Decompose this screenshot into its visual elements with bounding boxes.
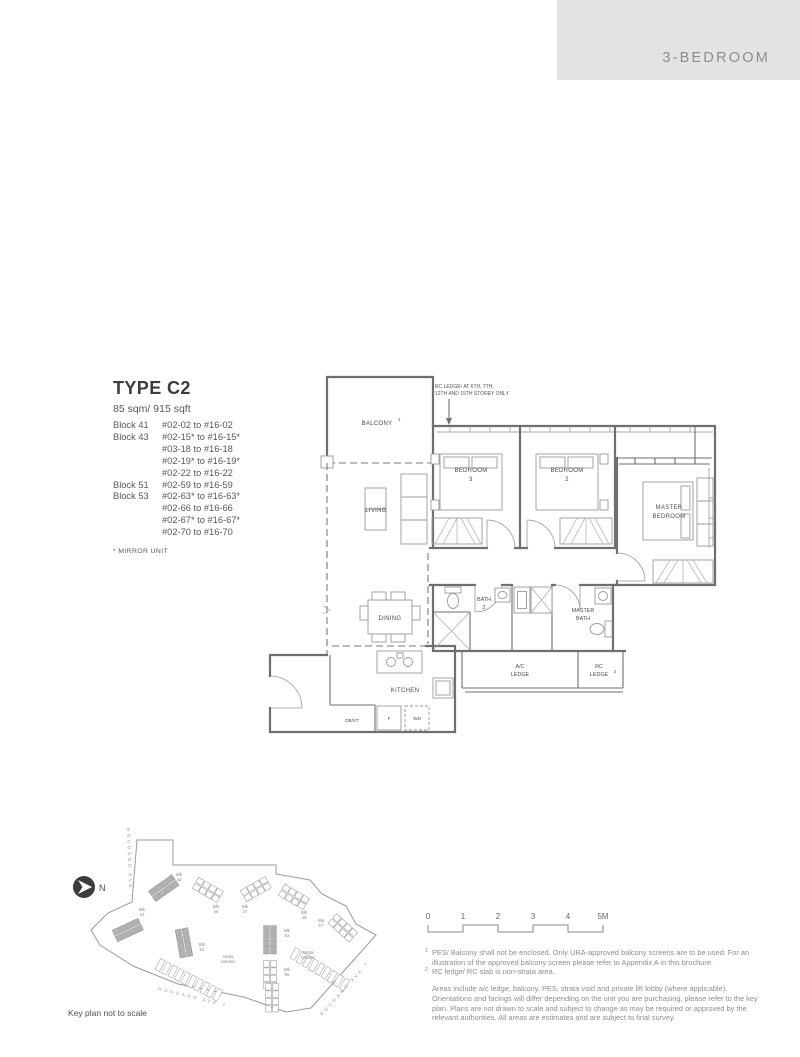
building-block (175, 929, 182, 936)
entrance-door (270, 676, 302, 708)
keyplan-cluster (278, 884, 309, 909)
footnote: 1PES/ Balcony shall not be enclosed. Onl… (424, 948, 764, 967)
bath2-label-2: 2 (483, 605, 486, 611)
block-number-label: Blk53 (284, 928, 291, 938)
building-block (273, 1006, 279, 1013)
category-label: 3-BEDROOM (662, 50, 770, 66)
bed2-side-table (600, 500, 608, 510)
master-window-wall (617, 458, 712, 464)
outer-wall-entry (270, 655, 455, 732)
block-label: Block 43 (113, 432, 162, 444)
block-number-label: Blk49 (301, 910, 308, 920)
building-block (271, 948, 277, 955)
rc-ledge-sup: 2 (614, 669, 617, 674)
master-bath-label-2: BATH (576, 616, 590, 622)
building-block (273, 991, 279, 998)
building-block (266, 984, 272, 991)
block-label: Block 51 (113, 480, 162, 492)
master-bath-wc (590, 624, 604, 635)
block-number-label: Blk43 (176, 872, 183, 882)
building-block (271, 940, 277, 947)
dining-label: DINING (379, 616, 402, 622)
bed3-side-table (431, 500, 439, 510)
master-bath-door (555, 585, 580, 610)
building-block (271, 933, 277, 940)
strata-landed-label: stratalanded (301, 950, 315, 960)
building-block (186, 949, 193, 956)
dining-chair (372, 592, 386, 600)
rc-ledge-note-line2: 12TH AND 15TH STOREY ONLY (435, 391, 510, 397)
master-door (617, 553, 645, 581)
bedroom2-label-2: 2 (565, 477, 569, 483)
scale-tick-label: 3 (531, 912, 536, 921)
keyplan-caption: Key plan not to scale (68, 1008, 147, 1018)
bed2-door (527, 520, 555, 548)
bed3-pillow (444, 457, 469, 468)
footnote: 2RC ledge/ RC slab is non-strata area. (424, 967, 764, 977)
building-block (271, 926, 277, 933)
master-bedroom-label-1: MASTER (656, 505, 683, 511)
block-label (113, 527, 162, 539)
building-block (264, 975, 270, 982)
block-label (113, 503, 162, 515)
block-number-label: Blk57 (318, 918, 325, 928)
building-block (264, 940, 270, 947)
building-block (264, 968, 270, 975)
bed3-door (487, 520, 515, 548)
footnote-marker: 2 (425, 966, 428, 976)
balcony-walls (327, 377, 433, 463)
keyplan-cluster (192, 877, 223, 902)
keyplan-cluster (328, 914, 358, 943)
building-block (176, 936, 183, 943)
block-label: Block 41 (113, 420, 162, 432)
bed2-pillow (568, 457, 593, 468)
master-wardrobe-hatch (656, 560, 707, 583)
building-block (273, 984, 279, 991)
master-bath-label-1: MASTER (572, 608, 595, 614)
block-label (113, 444, 162, 456)
rc-ledge-label-2: LEDGE (590, 672, 609, 678)
keyplan-cluster (112, 918, 143, 942)
north-label: N (99, 883, 106, 893)
kitchen-label: KITCHEN (391, 688, 419, 694)
master-wardrobe-shelves (697, 501, 713, 524)
bed2-wardrobe-hatch (563, 518, 609, 544)
scale-bar-rule (428, 925, 603, 932)
building-block (264, 926, 270, 933)
footnote-text: Areas include a/c ledge, balcony, PES, s… (432, 984, 758, 1022)
building-block (179, 950, 186, 957)
sofa (401, 474, 427, 544)
footnote-text: PES/ Balcony shall not be enclosed. Only… (432, 948, 749, 967)
scale-bar: 012345M (424, 910, 614, 942)
dining-chair (412, 606, 420, 620)
building-block (271, 975, 277, 982)
bed2-pillow (540, 457, 565, 468)
category-band: 3-BEDROOM (557, 0, 800, 80)
footnote: Areas include a/c ledge, balcony, PES, s… (424, 984, 764, 1023)
bed3-wardrobe-hatch (435, 518, 481, 544)
bed2-side-table (600, 454, 608, 464)
ac-ledge-label-2: LEDGE (511, 672, 530, 678)
dining-chair (391, 592, 405, 600)
dbst-label: DB/ST (345, 718, 359, 723)
building-block (266, 1006, 272, 1013)
scale-tick-label: 2 (496, 912, 501, 921)
building-block (271, 961, 277, 968)
building-block (183, 935, 190, 942)
rc-ledge-note-arrowhead (446, 418, 452, 425)
building-block (264, 948, 270, 955)
rc-ledge-label-1: RC (595, 664, 603, 670)
building-block (182, 928, 189, 935)
dining-chair (391, 634, 405, 642)
bath2-shower-x (434, 613, 469, 649)
bath2-wc (448, 594, 459, 609)
ac-ledge-label-1: A/C (516, 664, 525, 670)
bath2-basin (495, 588, 510, 602)
bath2-label-1: BATH (477, 597, 491, 603)
fridge-label: F (388, 716, 391, 721)
scale-tick-label: 4 (566, 912, 571, 921)
balcony-label: BALCONY (362, 421, 393, 427)
master-wardrobe-side (697, 478, 713, 546)
strata-landed-label: stratalanded (221, 954, 235, 964)
street-label-left: HOUGANG AVE 7 (126, 828, 133, 899)
shaft-box (514, 587, 530, 613)
block-label: Block 53 (113, 491, 162, 503)
brochure-page: 3-BEDROOM TYPE C2 85 sqm/ 915 sqft Block… (0, 0, 800, 1057)
block-number-label: Blk51 (199, 942, 206, 952)
stove-counter (377, 651, 422, 673)
block-number-label: Blk45 (213, 904, 220, 914)
block-label (113, 456, 162, 468)
rc-ledge-note-line1: RC LEDGE² AT 6TH, 7TH, (435, 384, 494, 390)
master-bath-basin (595, 588, 611, 604)
scale-tick-label: 5M (597, 912, 608, 921)
balcony-sup: 1 (398, 417, 401, 422)
keyplan: Blk41Blk43Blk45Blk47Blk49Blk51Blk53Blk55… (58, 818, 408, 1030)
building-block (264, 961, 270, 968)
bath2-wc-tank (445, 587, 461, 593)
bed3-side-table (431, 454, 439, 464)
keyplan-cluster (175, 928, 193, 958)
building-block (185, 942, 192, 949)
living-label: LIVING (365, 508, 387, 514)
block-number-label: Blk47 (242, 904, 249, 914)
footnote-marker: 1 (425, 947, 428, 957)
keyplan-cluster (149, 875, 180, 902)
building-block (266, 991, 272, 998)
footnotes: 1PES/ Balcony shall not be enclosed. Onl… (424, 948, 764, 1023)
master-bath-wc-tank (605, 621, 612, 637)
building-block (266, 998, 272, 1005)
footnote-text: RC ledge/ RC slab is non-strata area. (432, 967, 555, 976)
bedroom2-label-1: BEDROOM (550, 468, 583, 474)
bedroom3-label-1: BEDROOM (454, 468, 487, 474)
dining-chair (360, 606, 368, 620)
master-bedroom-label-2: BEDROOM (652, 514, 685, 520)
building-block (178, 943, 185, 950)
block-number-label: Blk41 (139, 907, 146, 917)
wd-label: WD (413, 716, 421, 721)
building-block (264, 933, 270, 940)
block-label (113, 515, 162, 527)
dining-chair (372, 634, 386, 642)
block-label (113, 468, 162, 480)
keyplan-cluster (264, 926, 277, 954)
block-number-label: Blk55 (284, 967, 291, 977)
bedroom3-label-2: 3 (469, 477, 473, 483)
scale-tick-label: 0 (426, 912, 431, 921)
scale-tick-label: 1 (461, 912, 466, 921)
floorplan-drawing: RC LEDGE² AT 6TH, 7TH, 12TH AND 15TH STO… (265, 368, 740, 748)
keyplan-cluster (240, 876, 271, 901)
scale-bar-ticks: 012345M (426, 912, 609, 921)
bed3-pillow (472, 457, 497, 468)
building-block (271, 968, 277, 975)
building-block (273, 998, 279, 1005)
